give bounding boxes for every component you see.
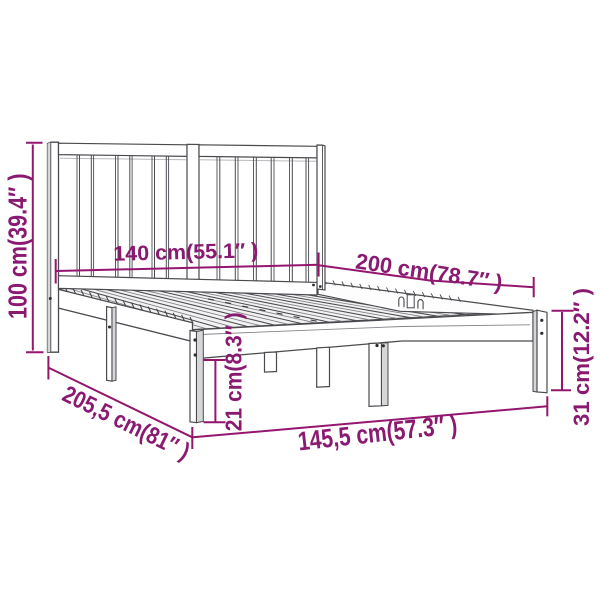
svg-text:140 cm(55.1″ ): 140 cm(55.1″ ) — [113, 239, 259, 266]
svg-text:100 cm(39.4″ ): 100 cm(39.4″ ) — [3, 174, 33, 320]
svg-text:31 cm(12.2″ ): 31 cm(12.2″ ) — [569, 288, 594, 426]
svg-text:21 cm(8.3″ ): 21 cm(8.3″ ) — [221, 312, 247, 431]
